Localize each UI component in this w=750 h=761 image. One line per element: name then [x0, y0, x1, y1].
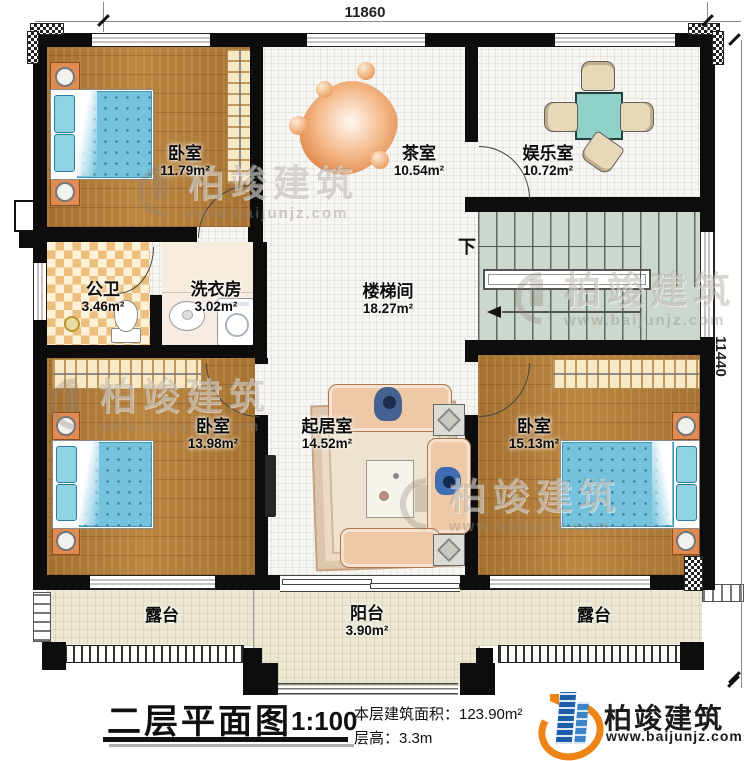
bed-pillow [54, 134, 75, 172]
sliding-door [280, 575, 460, 592]
wall-segment [19, 230, 33, 248]
bed-sheet-fold [652, 442, 672, 525]
wall-segment [465, 340, 715, 355]
bed-pillow [676, 446, 697, 483]
stair-guide-line [640, 246, 641, 313]
nightstand [52, 527, 80, 555]
room-label-stairhall: 楼梯间18.27m² [363, 283, 414, 317]
wall-segment [460, 575, 490, 590]
bed-pillow [56, 446, 77, 483]
floor-height-text: 层高：3.3m [354, 727, 432, 750]
decor-pebble [357, 62, 375, 80]
chair [544, 102, 578, 132]
table-decor [393, 473, 399, 479]
stair-down-label: 下 [458, 233, 476, 259]
dim-line-top [35, 21, 741, 22]
coffee-table [366, 460, 414, 518]
nightstand [50, 62, 80, 91]
window [90, 575, 215, 590]
bed-sheet-fold [77, 91, 97, 176]
bed-pillow [54, 95, 75, 133]
balcony-pillar [243, 663, 278, 695]
wall-segment [33, 33, 47, 263]
wall-segment [47, 345, 267, 358]
room-label-living: 起居室14.52m² [302, 418, 353, 452]
side-table [433, 404, 465, 436]
side-table [433, 534, 465, 566]
wall-segment [33, 320, 47, 590]
room-label-entertainment: 娱乐室10.72m² [523, 145, 574, 179]
corner-flue-hatch [712, 31, 724, 65]
dim-line-right [741, 40, 742, 688]
wall-segment [425, 33, 555, 47]
sofa-bench [340, 528, 440, 568]
wall-segment [650, 575, 715, 590]
sliding-door-panel [370, 583, 460, 589]
nightstand [52, 412, 80, 440]
window [490, 575, 650, 590]
nightstand [672, 412, 700, 440]
balcony-pillar [460, 663, 495, 695]
corner-flue-hatch [684, 556, 703, 591]
floor-plan-page: 11860 11440 下 [0, 0, 750, 761]
stair-guide-line [502, 311, 641, 313]
window [700, 232, 715, 337]
stair-guide-line [478, 246, 641, 247]
stair-landing [646, 287, 701, 340]
room-label-laundry: 洗衣房3.02m² [191, 281, 242, 315]
decor-pebble [289, 116, 308, 135]
room-label-bedroom-br: 卧室15.13m² [509, 418, 559, 452]
stair-direction-arrow [487, 306, 501, 318]
wall-segment [465, 355, 478, 362]
floor-area-text: 本层建筑面积：123.90m² [354, 703, 522, 726]
room-label-bedroom-tl: 卧室11.79m² [160, 145, 210, 179]
railing-post [680, 642, 704, 670]
window [307, 33, 425, 47]
terrace-railing [64, 645, 244, 663]
balcony-railing [278, 683, 458, 695]
tv [265, 455, 276, 517]
railing-post [42, 642, 66, 670]
decor-pebble [371, 151, 389, 169]
wall-segment [250, 47, 263, 242]
sliding-door-panel [282, 579, 372, 585]
corner-flue-hatch [27, 31, 39, 64]
wall-segment [465, 47, 478, 142]
wall-segment [210, 33, 307, 47]
balcony-pillar [476, 648, 493, 663]
drawing-scale: 1:100 [291, 706, 358, 737]
room-label-terrace-left: 露台 [145, 607, 179, 625]
room-label-terrace-right: 露台 [577, 607, 611, 625]
dim-tick [728, 33, 741, 46]
window [92, 33, 210, 47]
person-head [443, 476, 455, 488]
dim-right-label: 11440 [712, 336, 729, 377]
toilet-brush [64, 316, 80, 332]
title-underline [103, 737, 348, 742]
room-label-balcony: 阳台3.90m² [346, 605, 389, 639]
exterior-steps [33, 592, 51, 642]
room-label-bathroom: 公卫3.46m² [82, 281, 125, 315]
bed-pillow [56, 484, 77, 521]
table-flowers [379, 491, 389, 501]
wall-segment [150, 295, 162, 345]
wardrobe [52, 359, 202, 389]
wall-segment [253, 242, 267, 345]
brand-site: www.baijunjz.com [606, 728, 743, 744]
washer-drum [225, 313, 249, 337]
terrace-railing [498, 645, 684, 663]
page-title: 二层平面图 [107, 694, 292, 743]
nightstand [672, 527, 700, 555]
room-label-bedroom-bl: 卧室13.98m² [188, 418, 238, 452]
nightstand [50, 177, 80, 206]
window [33, 263, 47, 320]
person-head [383, 396, 396, 409]
decor-pebble [316, 81, 333, 98]
wardrobe [552, 359, 700, 389]
wall-segment [215, 575, 280, 590]
bed-pillow [676, 484, 697, 521]
room-label-tea: 茶室10.54m² [394, 145, 444, 179]
title-underline-shadow [109, 744, 354, 747]
wall-segment [465, 197, 715, 212]
brand-logo-icon [538, 690, 596, 752]
stair-handrail [483, 269, 651, 290]
balcony-pillar [243, 648, 262, 663]
dim-top-label: 11860 [345, 4, 386, 21]
wall-segment [33, 575, 90, 590]
bed-sheet-fold [79, 442, 99, 525]
wall-segment [47, 227, 197, 242]
window [555, 33, 675, 47]
chair [581, 61, 615, 91]
chair [620, 102, 654, 132]
